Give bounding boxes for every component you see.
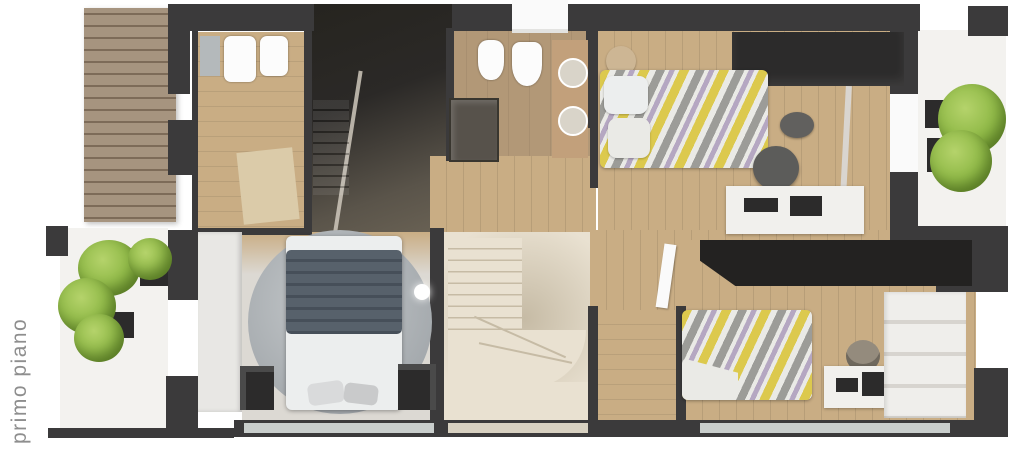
wall-segment	[48, 428, 234, 438]
wall-segment	[46, 226, 68, 256]
master-wardrobe	[198, 232, 242, 412]
terrace-plant	[74, 314, 124, 362]
shower	[449, 98, 499, 162]
terrace-plant	[128, 238, 172, 280]
master-duvet	[286, 250, 402, 334]
wall-segment	[168, 120, 192, 175]
floor-mat	[236, 147, 299, 224]
pillow	[343, 382, 379, 406]
wall-segment	[168, 4, 190, 94]
wall-lamp	[414, 284, 430, 300]
pillow	[604, 76, 648, 114]
wall-segment	[166, 376, 198, 428]
washer	[200, 36, 220, 76]
window	[700, 423, 950, 433]
pillow	[608, 118, 650, 158]
pergola-roof	[84, 8, 176, 222]
window	[448, 423, 588, 433]
sink-basin	[558, 106, 588, 136]
wall-segment	[168, 230, 198, 300]
wall-segment	[452, 4, 512, 31]
window	[244, 423, 434, 433]
balcony-plant	[930, 130, 992, 192]
wall-segment	[968, 6, 1008, 36]
nightstand	[398, 364, 436, 410]
stair-landing	[448, 382, 588, 422]
wall-segment	[974, 368, 1008, 428]
wall-segment	[588, 306, 598, 426]
window	[512, 0, 568, 33]
floorplan-canvas: primo piano	[0, 0, 1024, 449]
wall-segment	[192, 28, 198, 234]
void-steps-hint	[313, 100, 349, 195]
boiler	[260, 36, 288, 76]
wall-segment	[304, 28, 312, 234]
closet-floor	[596, 310, 678, 422]
stool	[780, 112, 814, 138]
desk-chair	[753, 146, 799, 190]
hallway-floor	[430, 156, 596, 242]
shelving-unit	[884, 292, 966, 418]
bidet	[478, 40, 504, 80]
floor-label: primo piano	[8, 312, 32, 444]
keyboard	[836, 378, 858, 392]
wall-segment	[890, 172, 918, 230]
sink-basin	[558, 58, 588, 88]
nightstand	[240, 366, 274, 410]
wall-segment	[590, 28, 598, 188]
laundry-sink	[224, 36, 256, 82]
laptop	[790, 196, 822, 216]
keyboard	[744, 198, 778, 212]
window	[890, 94, 918, 172]
toilet	[512, 42, 542, 86]
wardrobe	[700, 240, 972, 286]
wall-segment	[568, 4, 920, 31]
